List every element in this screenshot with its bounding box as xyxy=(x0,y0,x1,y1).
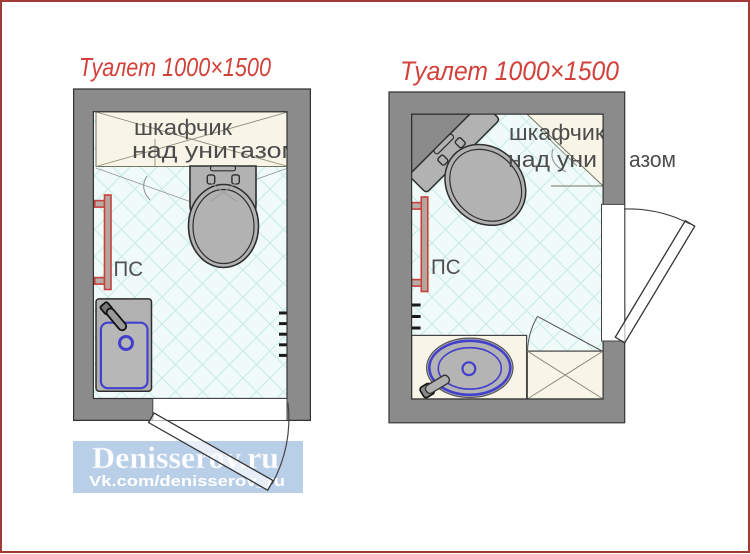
svg-text:шкафчик: шкафчик xyxy=(509,120,605,145)
svg-text:Туалет 1000×1500: Туалет 1000×1500 xyxy=(79,52,271,82)
svg-text:шкафчик: шкафчик xyxy=(134,115,232,140)
svg-text:над уни: над уни xyxy=(508,147,597,172)
svg-text:Туалет 1000×1500: Туалет 1000×1500 xyxy=(400,56,619,86)
svg-text:ПС: ПС xyxy=(431,256,461,279)
svg-text:над унитазом: над унитазом xyxy=(132,138,300,163)
svg-text:ПС: ПС xyxy=(114,258,144,281)
svg-text:азом: азом xyxy=(629,147,676,172)
